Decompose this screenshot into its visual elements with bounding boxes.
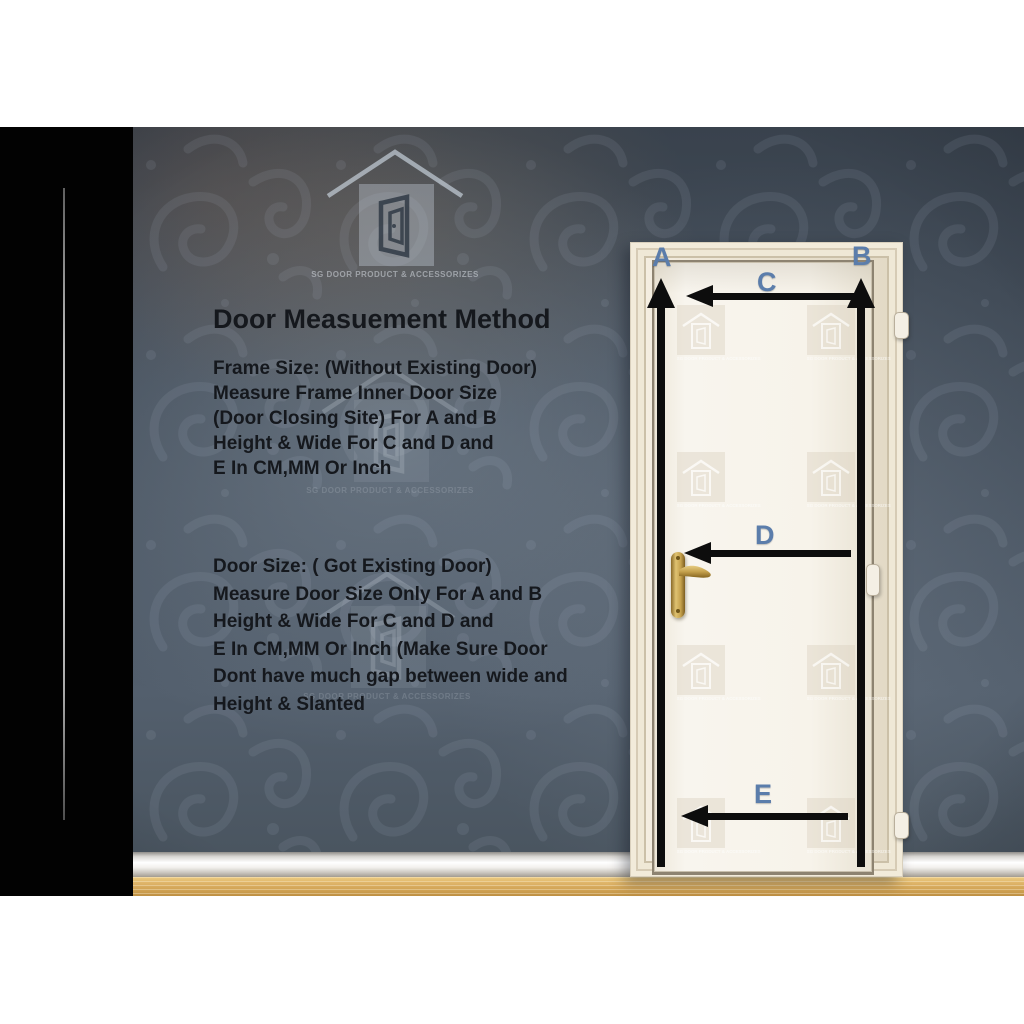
brand-text: SG DOOR PRODUCT & ACCESSORIZES — [807, 356, 855, 361]
arrow-b-shaft — [857, 305, 865, 867]
frame-size-note: Frame Size: (Without Existing Door) Meas… — [213, 356, 537, 481]
brand-text: SG DOOR PRODUCT & ACCESSORIZES — [807, 696, 855, 701]
arrow-a-shaft — [657, 305, 665, 867]
brand-text: SG DOOR PRODUCT & ACCESSORIZES — [310, 270, 480, 279]
hinge-icon — [894, 812, 909, 839]
hinge-icon — [894, 312, 909, 339]
brand-text: SG DOOR PRODUCT & ACCESSORIZES — [677, 356, 725, 361]
arrow-a-head — [647, 278, 675, 308]
screw-icon — [676, 556, 680, 560]
measure-label-c: C — [757, 269, 777, 296]
door-watermark: SG DOOR PRODUCT & ACCESSORIZES — [807, 798, 855, 858]
door-measurement-infographic: SG DOOR PRODUCT & ACCESSORIZES SG DOOR P… — [0, 0, 1024, 1024]
note-line: Frame Size: (Without Existing Door) — [213, 356, 537, 381]
arrow-d-head — [684, 542, 711, 564]
door-size-note: Door Size: ( Got Existing Door) Measure … — [213, 553, 568, 718]
top-margin — [0, 0, 1024, 127]
brand-text: SG DOOR PRODUCT & ACCESSORIZES — [807, 849, 855, 854]
note-line: Measure Door Size Only For A and B — [213, 581, 568, 609]
house-icon — [681, 650, 721, 692]
handle-lever-icon — [677, 563, 715, 583]
measure-label-d: D — [755, 522, 775, 549]
bottom-margin — [0, 896, 1024, 1024]
door-watermark: SG DOOR PRODUCT & ACCESSORIZES — [807, 452, 855, 512]
brand-text: SG DOOR PRODUCT & ACCESSORIZES — [677, 849, 725, 854]
note-line: (Door Closing Site) For A and B — [213, 406, 537, 431]
house-icon — [811, 650, 851, 692]
house-icon — [811, 457, 851, 499]
brand-text: SG DOOR PRODUCT & ACCESSORIZES — [305, 486, 475, 495]
brand-text: SG DOOR PRODUCT & ACCESSORIZES — [677, 696, 725, 701]
house-icon — [681, 457, 721, 499]
wood-floor-strip — [133, 877, 1024, 896]
left-black-panel — [0, 127, 133, 896]
door-watermark: SG DOOR PRODUCT & ACCESSORIZES — [677, 452, 725, 512]
house-icon — [811, 310, 851, 352]
page-title: Door Measuement Method — [213, 303, 551, 335]
screw-icon — [676, 609, 680, 613]
arrow-c-head — [686, 285, 713, 307]
note-line: Dont have much gap between wide and — [213, 663, 568, 691]
brand-logo-top: SG DOOR PRODUCT & ACCESSORIZES — [320, 146, 470, 288]
note-line: E In CM,MM Or Inch — [213, 456, 537, 481]
brand-text: SG DOOR PRODUCT & ACCESSORIZES — [807, 503, 855, 508]
door-watermark: SG DOOR PRODUCT & ACCESSORIZES — [807, 645, 855, 705]
door-watermark: SG DOOR PRODUCT & ACCESSORIZES — [677, 305, 725, 365]
note-line: Door Size: ( Got Existing Door) — [213, 553, 568, 581]
house-icon — [811, 803, 851, 845]
note-line: Measure Frame Inner Door Size — [213, 381, 537, 406]
house-icon — [681, 310, 721, 352]
arrow-e-head — [681, 805, 708, 827]
note-line: E In CM,MM Or Inch (Make Sure Door — [213, 636, 568, 664]
door-watermark: SG DOOR PRODUCT & ACCESSORIZES — [677, 645, 725, 705]
open-door-icon — [374, 194, 420, 258]
note-line: Height & Slanted — [213, 691, 568, 719]
measure-label-a: A — [652, 244, 672, 271]
note-line: Height & Wide For C and D and — [213, 608, 568, 636]
arrow-e-shaft — [705, 813, 848, 820]
measure-label-e: E — [754, 781, 772, 808]
measure-label-b: B — [852, 243, 872, 270]
note-line: Height & Wide For C and D and — [213, 431, 537, 456]
door-watermark: SG DOOR PRODUCT & ACCESSORIZES — [807, 305, 855, 365]
arrow-c-shaft — [710, 293, 854, 300]
arrow-d-shaft — [708, 550, 851, 557]
vertical-divider-line — [63, 188, 65, 820]
brand-text: SG DOOR PRODUCT & ACCESSORIZES — [677, 503, 725, 508]
latch-icon — [866, 564, 880, 596]
